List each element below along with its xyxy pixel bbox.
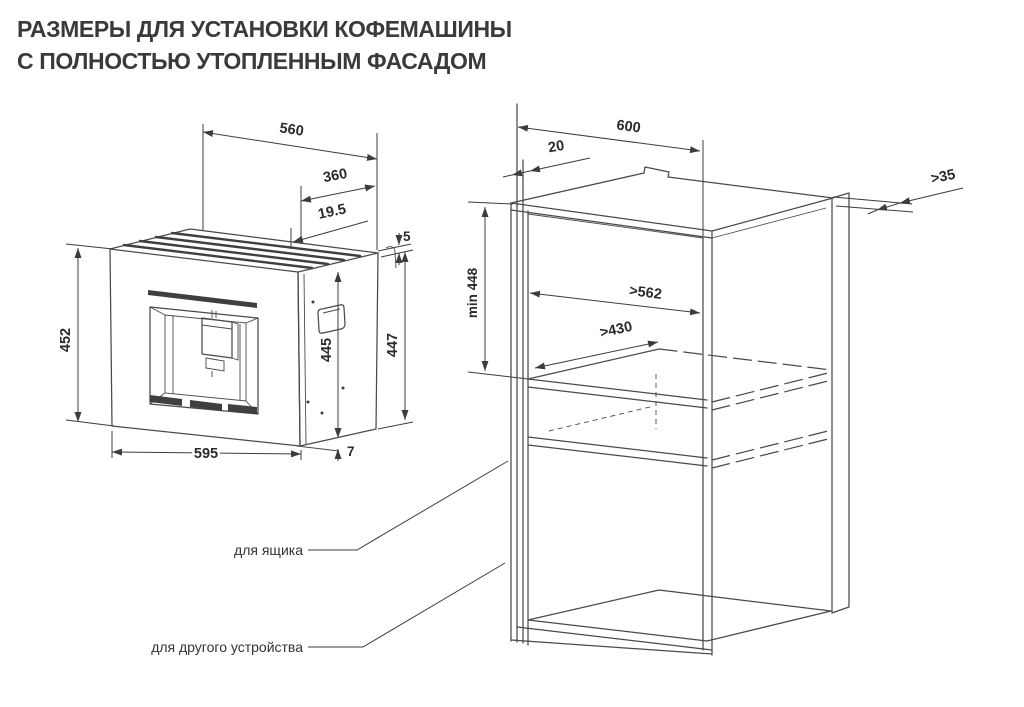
machine-dim-side-height: 447: [385, 333, 401, 357]
title-line-2: С ПОЛНОСТЬЮ УТОПЛЕННЫМ ФАСАДОМ: [17, 48, 486, 74]
coffee-machine-drawing: 560 360 19.5 5 452 445: [58, 120, 413, 462]
cabinet-dim-niche-height: min 448: [465, 267, 480, 318]
machine-dim-depth: 360: [322, 166, 349, 186]
machine-side-details: [307, 247, 397, 415]
machine-dispenser: [202, 310, 238, 377]
side-handle: [318, 305, 345, 333]
other-device-label: для другого устройства: [151, 639, 303, 655]
dimension-452: 452: [58, 244, 114, 426]
machine-dim-front-offset: 19.5: [317, 201, 348, 223]
machine-dim-top-gap: 5: [403, 229, 411, 244]
installation-diagram-page: РАЗМЕРЫ ДЛЯ УСТАНОВКИ КОФЕМАШИНЫ С ПОЛНО…: [0, 0, 1024, 707]
machine-dim-body-height: 445: [319, 338, 335, 362]
label-drawer: для ящика: [234, 461, 508, 558]
dimension-560: 560: [203, 120, 377, 250]
dimension-447: 447: [378, 252, 413, 429]
drawer-label: для ящика: [234, 542, 303, 558]
dimension-35: >35: [833, 167, 963, 214]
cabinet-drawing: 600 20 >35 min 448 >562 >430: [151, 104, 963, 655]
cabinet-structure: [511, 104, 849, 655]
machine-dim-top-width: 560: [278, 120, 304, 139]
machine-dim-bottom-gap: 7: [347, 444, 355, 459]
dimension-430: >430: [535, 319, 658, 368]
dimension-20: 20: [503, 138, 590, 177]
machine-drip-tray: [150, 395, 257, 414]
dimension-562: >562: [530, 283, 700, 313]
dimension-min-448: min 448: [465, 202, 528, 379]
title-line-1: РАЗМЕРЫ ДЛЯ УСТАНОВКИ КОФЕМАШИНЫ: [17, 16, 512, 42]
machine-front-details: [148, 290, 258, 414]
cabinet-dim-depth: 600: [615, 118, 641, 137]
machine-dim-front-width: 595: [194, 446, 218, 462]
technical-drawing: РАЗМЕРЫ ДЛЯ УСТАНОВКИ КОФЕМАШИНЫ С ПОЛНО…: [0, 0, 1024, 707]
label-other-device: для другого устройства: [151, 563, 505, 655]
dimension-7: 7: [338, 444, 355, 461]
machine-dim-front-height: 452: [58, 328, 74, 352]
cabinet-dim-shelf-depth: >430: [599, 319, 634, 341]
dimension-19-5: 19.5: [291, 201, 368, 249]
cabinet-dim-front-gap: 20: [547, 138, 566, 157]
machine-top-slats: [124, 233, 360, 268]
page-title: РАЗМЕРЫ ДЛЯ УСТАНОВКИ КОФЕМАШИНЫ С ПОЛНО…: [17, 16, 512, 74]
cabinet-dim-wall-clearance: >35: [929, 167, 956, 188]
cabinet-dim-niche-width: >562: [628, 283, 662, 303]
dimension-600: 600: [518, 118, 703, 236]
